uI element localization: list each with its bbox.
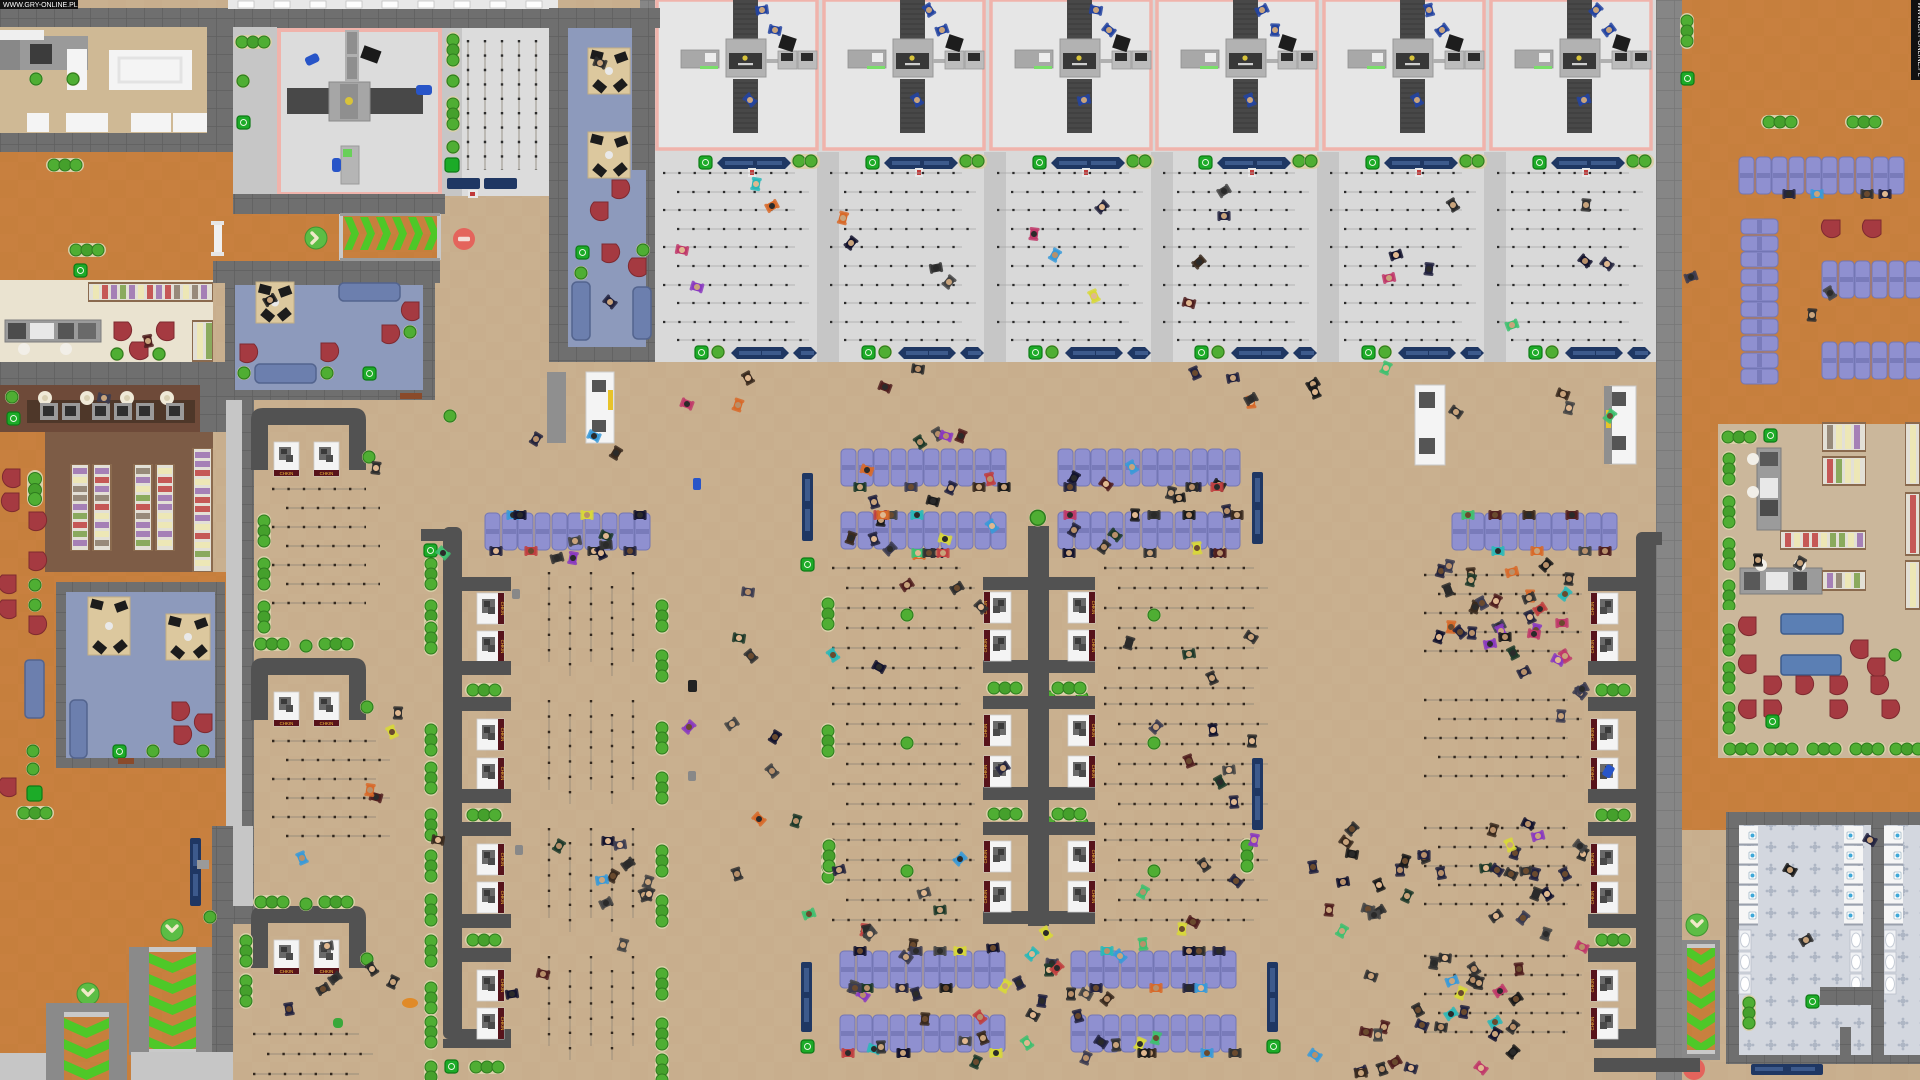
- svg-text:WWW.GRY-ONLINE.PL: WWW.GRY-ONLINE.PL: [1916, 2, 1920, 77]
- svg-text:WWW.GRY-ONLINE.PL: WWW.GRY-ONLINE.PL: [3, 2, 78, 9]
